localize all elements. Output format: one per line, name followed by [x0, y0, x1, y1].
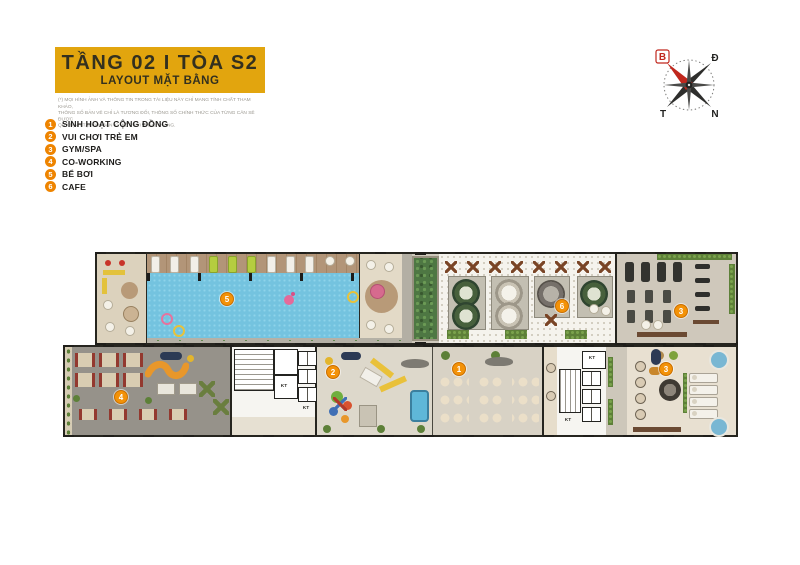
compass-west-label: T	[660, 109, 666, 120]
elevator	[582, 371, 601, 386]
round-table	[495, 302, 523, 330]
sun-loungers	[151, 256, 355, 273]
elevator	[582, 389, 601, 404]
core-stairs-lifts-2: KT KT	[542, 347, 627, 435]
palm-plant	[417, 425, 425, 433]
title-block: TẦNG 02 I TÒA S2 LAYOUT MẶT BẰNG	[55, 47, 265, 93]
bean-bag	[601, 306, 611, 316]
jacuzzi-tub	[709, 417, 729, 437]
core-stairs-lifts-1: KT KT	[230, 347, 317, 435]
curved-sofa	[485, 357, 513, 366]
bean-bag	[384, 262, 394, 272]
ring-float	[161, 313, 173, 325]
yellow-bench	[102, 278, 107, 294]
bean-bag	[366, 260, 376, 270]
sun-lounger	[286, 256, 295, 273]
plan-marker-pool: 5	[220, 292, 234, 306]
legend-item-vui-choi-tre-em: 2 VUI CHƠI TRẺ EM	[45, 131, 168, 144]
legend-label: SINH HOẠT CỘNG ĐỒNG	[62, 119, 168, 129]
elevator	[298, 351, 317, 366]
legend-number-badge: 2	[45, 131, 56, 142]
planter	[683, 373, 687, 413]
cafe-table	[555, 261, 567, 273]
cafe-table	[489, 261, 501, 273]
palm-plant	[323, 425, 331, 433]
planter	[657, 254, 732, 260]
zone-cafe	[439, 254, 615, 343]
zone-swimming-pool	[147, 273, 359, 338]
sun-lounger	[267, 256, 276, 273]
legend-item-gym-spa: 3 GYM/SPA	[45, 143, 168, 156]
plan-marker-coworking: 4	[114, 390, 128, 404]
treadmill	[641, 262, 650, 282]
legend-number-badge: 4	[45, 156, 56, 167]
bean-bag	[345, 256, 355, 266]
kids-pool	[410, 390, 429, 422]
cafe-table	[545, 314, 557, 326]
yellow-bench	[103, 270, 125, 275]
gym-bench	[637, 332, 687, 337]
play-mat	[359, 405, 377, 427]
curved-sofa	[401, 359, 429, 368]
legend-item-sinh-hoat-cong-dong: 1 SINH HOẠT CỘNG ĐỒNG	[45, 118, 168, 131]
work-table	[75, 373, 95, 387]
chair-row	[439, 411, 539, 425]
amenity-band-top	[95, 252, 738, 345]
cafe-table	[467, 261, 479, 273]
cafe-table	[577, 261, 589, 273]
legend-label: VUI CHƠI TRẺ EM	[62, 132, 138, 142]
zone-relax-umbrella	[359, 254, 402, 338]
compass-east-label: Đ	[711, 53, 718, 64]
chair-row	[439, 375, 539, 389]
legend-number-badge: 3	[45, 144, 56, 155]
plan-marker-community: 1	[452, 362, 466, 376]
cafe-table	[599, 261, 611, 273]
zone-kids-playground	[317, 347, 432, 435]
playset-cross	[333, 397, 347, 411]
zone-pool-deck	[147, 254, 359, 273]
yellow-toy	[325, 357, 333, 365]
gym-machine	[663, 310, 671, 323]
rattan-chair	[123, 306, 139, 322]
plant	[145, 397, 152, 404]
planter	[608, 399, 613, 425]
legend-item-co-working: 4 CO-WORKING	[45, 156, 168, 169]
cross-desk	[213, 399, 229, 415]
amenity-band-bottom: KT KT	[63, 345, 738, 437]
compass-south-label: N	[711, 109, 718, 120]
round-spa-feature	[659, 379, 681, 401]
legend-number-badge: 6	[45, 181, 56, 192]
sun-lounger	[305, 256, 314, 273]
bean-bag	[366, 320, 376, 330]
work-table	[169, 409, 187, 420]
walkway	[402, 254, 412, 343]
work-table	[99, 373, 119, 387]
work-table	[79, 409, 97, 420]
legend-label: CO-WORKING	[62, 157, 122, 167]
aisle	[505, 373, 512, 427]
planter	[729, 264, 735, 314]
aisle	[469, 373, 476, 427]
zone-spa	[627, 347, 736, 435]
sun-lounger	[151, 256, 160, 273]
room-label-kt: KT	[589, 356, 595, 361]
legend-label: CAFE	[62, 182, 86, 192]
work-table	[123, 373, 143, 387]
plan-marker-gym: 3	[674, 304, 688, 318]
room-label-kt: KT	[303, 406, 309, 411]
compass-rose-icon: B Đ T N	[650, 44, 728, 122]
floorplan-page: TẦNG 02 I TÒA S2 LAYOUT MẶT BẰNG (*) MỌI…	[0, 0, 800, 565]
planter	[565, 330, 587, 339]
slide	[379, 376, 407, 393]
chair	[546, 391, 556, 401]
sun-lounger	[170, 256, 179, 273]
sun-lounger	[190, 256, 199, 273]
massage-bed	[689, 397, 718, 407]
pouf	[669, 351, 678, 360]
disclaimer-line: (*) MỌI HÌNH ẢNH VÀ THÔNG TIN TRONG TÀI …	[58, 97, 265, 110]
legend: 1 SINH HOẠT CỘNG ĐỒNG 2 VUI CHƠI TRẺ EM …	[45, 118, 168, 193]
navy-lounger	[651, 349, 661, 365]
plan-marker-cafe: 6	[555, 299, 569, 313]
navy-toy	[341, 352, 361, 360]
legend-item-cafe: 6 CAFE	[45, 181, 168, 194]
pink-umbrella	[370, 284, 385, 299]
dumbbell-rack	[695, 264, 710, 269]
plan-marker-kids: 2	[326, 365, 340, 379]
bean-bag	[325, 256, 335, 266]
planter	[608, 357, 613, 387]
planter	[447, 330, 469, 339]
sun-lounger	[247, 256, 256, 273]
zone-vertical-garden	[412, 256, 439, 341]
legend-item-be-boi: 5 BỂ BƠI	[45, 168, 168, 181]
work-table	[75, 353, 95, 367]
play-circle	[341, 415, 349, 423]
planter-strip	[65, 347, 72, 435]
gym-machine	[627, 310, 635, 323]
bean-bag	[105, 322, 115, 332]
bean-bag	[641, 320, 651, 330]
red-chair	[105, 260, 111, 266]
page-subtitle: LAYOUT MẶT BẰNG	[55, 74, 265, 88]
dumbbell-rack	[695, 292, 710, 297]
zone-community-hall	[432, 347, 542, 435]
legend-number-badge: 1	[45, 119, 56, 130]
gym-machine	[627, 290, 635, 303]
treadmill	[625, 262, 634, 282]
red-chair	[119, 260, 125, 266]
zone-pool-lounge	[97, 254, 147, 343]
work-table	[123, 353, 143, 367]
legend-label: BỂ BƠI	[62, 169, 93, 179]
dumbbell-rack	[695, 306, 710, 311]
bean-bag	[103, 300, 113, 310]
room-label-kt: KT	[565, 418, 571, 423]
zone-gym	[615, 254, 736, 343]
page-title: TẦNG 02 I TÒA S2	[55, 52, 265, 74]
legend-number-badge: 5	[45, 169, 56, 180]
work-table	[99, 353, 119, 367]
ring-float	[173, 325, 185, 337]
flamingo-float	[284, 295, 294, 305]
pool-walkway-plants	[147, 338, 412, 343]
bean-bag	[384, 324, 394, 334]
salon-chair	[635, 393, 646, 404]
gym-machine	[645, 290, 653, 303]
ring-float	[347, 291, 359, 303]
bean-bag	[589, 304, 599, 314]
floor-plan: KT KT	[60, 250, 740, 448]
treadmill	[673, 262, 682, 282]
cafe-table	[445, 261, 457, 273]
pool-edge-columns	[147, 273, 359, 281]
elevator	[298, 369, 317, 384]
zone-co-working	[65, 347, 230, 435]
staircase	[234, 349, 274, 391]
s-shaped-sofa	[145, 359, 189, 381]
technical-room	[274, 349, 298, 375]
work-table	[139, 409, 157, 420]
room-label-kt: KT	[281, 384, 287, 389]
planter	[505, 330, 527, 339]
cafe-table	[511, 261, 523, 273]
gym-bench	[693, 320, 719, 324]
massage-bed	[689, 373, 718, 383]
salon-chair	[635, 377, 646, 388]
salon-chair	[635, 361, 646, 372]
meeting-table	[179, 383, 197, 395]
plan-marker-spa: 3	[659, 362, 673, 376]
cafe-table	[533, 261, 545, 273]
compass-north-label: B	[659, 52, 666, 63]
palm-plant	[377, 425, 385, 433]
round-table	[121, 282, 138, 299]
sun-lounger	[228, 256, 237, 273]
bean-bag	[125, 326, 135, 336]
salon-chair	[635, 409, 646, 420]
massage-bed	[689, 385, 718, 395]
jacuzzi-tub	[709, 350, 729, 370]
dumbbell-rack	[695, 278, 710, 283]
bean-bag	[653, 320, 663, 330]
cross-desk	[199, 381, 215, 397]
work-table	[109, 409, 127, 420]
chair-row	[439, 393, 539, 407]
plant	[441, 351, 450, 360]
round-booth	[452, 302, 480, 330]
staircase	[559, 369, 581, 413]
compass-svg: B Đ T N	[650, 44, 728, 122]
gym-machine	[663, 290, 671, 303]
corridor	[232, 417, 315, 435]
elevator	[582, 407, 601, 422]
legend-label: GYM/SPA	[62, 144, 102, 154]
meeting-table	[157, 383, 175, 395]
chair	[546, 363, 556, 373]
spa-counter	[633, 427, 681, 432]
plant	[73, 395, 80, 402]
sun-lounger	[209, 256, 218, 273]
elevator	[298, 387, 317, 402]
treadmill	[657, 262, 666, 282]
